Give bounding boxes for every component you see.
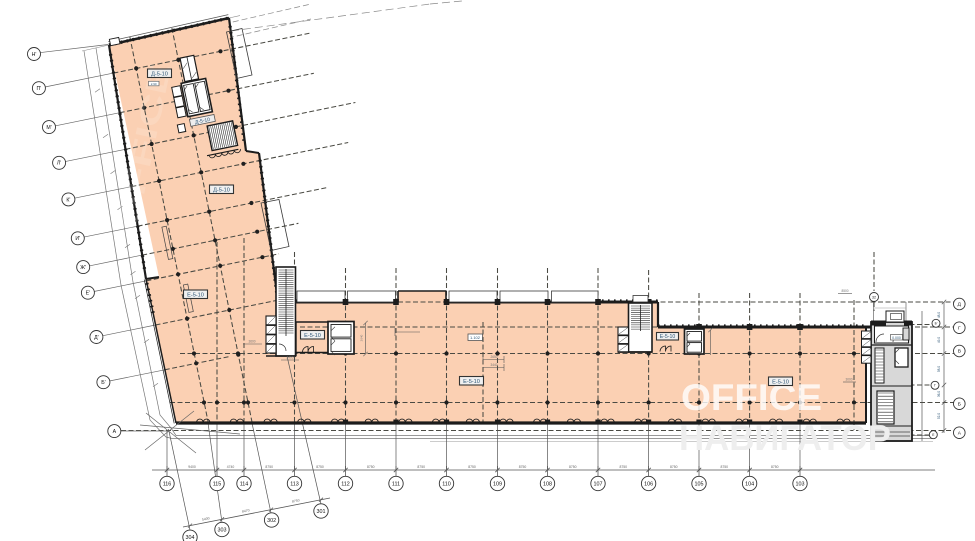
svg-text:3000: 3000	[845, 378, 852, 382]
svg-text:107: 107	[594, 481, 603, 487]
svg-text:Е-5-10: Е-5-10	[463, 379, 480, 385]
svg-text:9400: 9400	[188, 465, 196, 469]
svg-text:8750: 8750	[670, 465, 678, 469]
svg-text:113: 113	[290, 481, 299, 487]
svg-text:К': К'	[66, 197, 70, 203]
svg-text:8470: 8470	[242, 508, 250, 513]
svg-text:116: 116	[163, 481, 172, 487]
svg-text:Е-5-10: Е-5-10	[187, 292, 204, 298]
svg-text:Г: Г	[958, 325, 961, 331]
svg-text:2.90: 2.90	[151, 82, 157, 86]
svg-text:109: 109	[493, 481, 502, 487]
svg-text:8750: 8750	[417, 465, 425, 469]
svg-text:8750: 8750	[569, 465, 577, 469]
svg-text:И': И'	[75, 236, 80, 242]
svg-text:103: 103	[796, 481, 805, 487]
svg-text:Е-5-10: Е-5-10	[772, 379, 789, 385]
svg-text:0.000: 0.000	[892, 336, 901, 340]
svg-text:2640: 2640	[360, 334, 364, 341]
svg-text:3600: 3600	[248, 340, 255, 344]
svg-text:114: 114	[240, 481, 249, 487]
svg-text:8750: 8750	[620, 465, 628, 469]
svg-text:303: 303	[218, 527, 227, 533]
svg-text:49.0: 49.0	[937, 337, 941, 343]
svg-text:2650: 2650	[490, 355, 497, 359]
svg-text:105: 105	[695, 481, 704, 487]
svg-text:А: А	[113, 429, 117, 435]
svg-text:4740: 4740	[227, 465, 235, 469]
svg-text:П': П'	[37, 86, 42, 92]
svg-text:В: В	[958, 349, 961, 355]
svg-text:8750: 8750	[468, 465, 476, 469]
svg-text:Д-5-10: Д-5-10	[213, 187, 230, 193]
svg-text:Е-5-10: Е-5-10	[304, 333, 321, 339]
svg-text:108: 108	[543, 481, 552, 487]
svg-text:1.102: 1.102	[470, 335, 481, 340]
svg-text:М': М'	[46, 125, 51, 131]
svg-text:Б': Б'	[935, 322, 938, 326]
svg-text:36.0: 36.0	[937, 391, 941, 397]
svg-text:106: 106	[644, 481, 653, 487]
svg-text:Д': Д'	[94, 335, 99, 341]
svg-text:Ж': Ж'	[80, 265, 86, 271]
svg-text:8750: 8750	[721, 465, 729, 469]
svg-text:8750: 8750	[265, 465, 273, 469]
svg-text:Б: Б	[958, 401, 961, 407]
svg-text:8750: 8750	[771, 465, 779, 469]
svg-text:8750: 8750	[316, 465, 324, 469]
svg-text:111: 111	[392, 481, 400, 487]
svg-text:8750: 8750	[519, 465, 527, 469]
svg-text:НАВИГАТОР: НАВИГАТОР	[679, 419, 891, 458]
svg-text:5400: 5400	[202, 516, 210, 521]
svg-text:Д-5-10: Д-5-10	[151, 71, 168, 77]
svg-text:2400: 2400	[286, 356, 293, 360]
svg-text:32: 32	[872, 295, 876, 299]
svg-text:Л': Л'	[57, 161, 61, 167]
svg-text:8750: 8750	[367, 465, 375, 469]
svg-text:58.0: 58.0	[937, 366, 941, 372]
svg-text:3440: 3440	[490, 363, 497, 367]
svg-text:104: 104	[745, 481, 754, 487]
svg-text:Е': Е'	[86, 291, 90, 297]
svg-text:8500: 8500	[841, 289, 848, 293]
svg-text:115: 115	[213, 481, 222, 487]
svg-text:8750: 8750	[292, 498, 300, 503]
svg-text:302: 302	[267, 518, 276, 524]
svg-text:48.0: 48.0	[937, 312, 941, 318]
svg-text:112: 112	[341, 481, 350, 487]
svg-text:52.0: 52.0	[937, 413, 941, 419]
svg-text:110: 110	[442, 481, 451, 487]
svg-text:304: 304	[186, 535, 195, 541]
svg-text:OFFICE: OFFICE	[681, 377, 822, 418]
svg-text:301: 301	[317, 509, 326, 515]
svg-text:Н': Н'	[32, 52, 37, 58]
svg-text:Б': Б'	[101, 380, 105, 386]
svg-text:Г: Г	[934, 384, 936, 388]
svg-text:Е-5-10: Е-5-10	[660, 334, 676, 340]
